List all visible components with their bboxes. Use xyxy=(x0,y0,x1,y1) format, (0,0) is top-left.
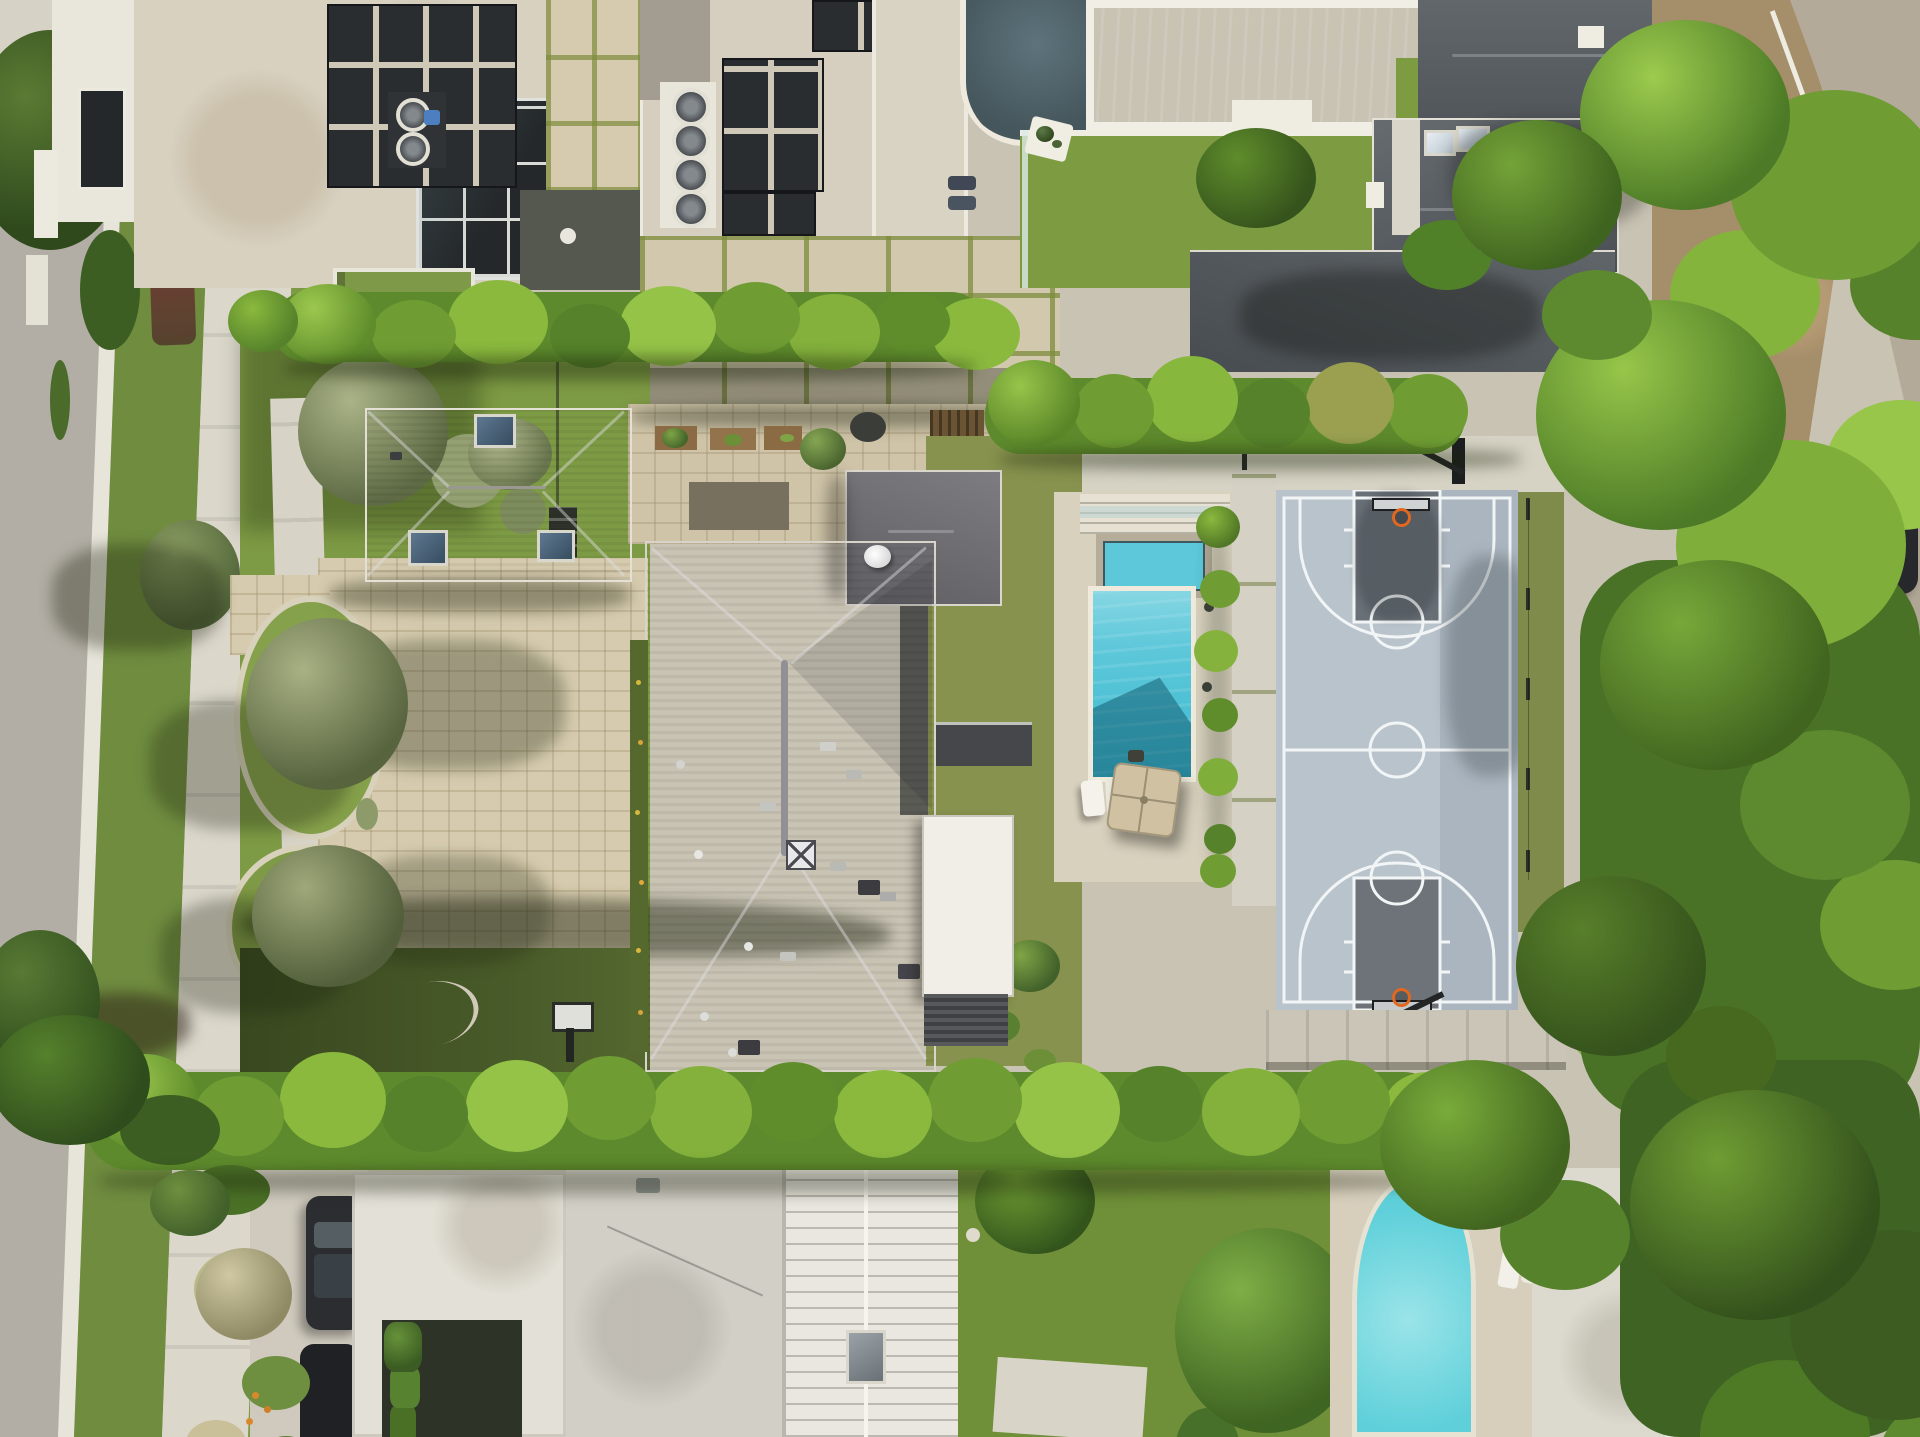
south-white-ribbed-roof xyxy=(782,1162,958,1437)
upper-paver-walkway xyxy=(546,0,640,192)
pool-side-hedge xyxy=(1196,506,1240,548)
north-hedge-west-tail xyxy=(228,290,298,352)
aerial-photo-stage xyxy=(0,0,1920,1437)
pampas-plume xyxy=(196,1248,292,1340)
umbrella-finial xyxy=(1140,796,1148,804)
south-hedge-shadow-down xyxy=(100,1168,1430,1194)
ribbed-roof-skylight xyxy=(846,1330,886,1384)
north-wing-ridge xyxy=(888,530,954,533)
pool-lounger-1 xyxy=(1080,779,1106,817)
hoop-south-rim xyxy=(1392,988,1411,1007)
garage-ridge xyxy=(448,486,546,489)
north-neighbor-balcony-rail-2 xyxy=(26,255,48,325)
turf-steps-platform xyxy=(936,722,1032,766)
solar-array-d xyxy=(722,192,816,236)
planter-box-2 xyxy=(710,428,756,450)
trees-patio-north xyxy=(1196,128,1316,228)
parked-car-south-1-glass xyxy=(314,1222,356,1248)
parked-car-south-1-roof xyxy=(314,1254,356,1298)
sports-net-line xyxy=(1528,500,1529,880)
parked-car-east-1-glass xyxy=(1862,480,1910,508)
northeast-roof-upper-ridge xyxy=(1452,54,1622,57)
south-gray-flat-roof xyxy=(566,1165,782,1437)
ribbed-roof-ridge xyxy=(864,1162,868,1437)
garage-skylight-2 xyxy=(408,530,448,566)
solar-array-b xyxy=(722,58,824,192)
yucca-pampas-garden xyxy=(150,1170,230,1236)
northeast-chimney-2 xyxy=(1366,182,1384,208)
blue-tarp-detail xyxy=(424,110,440,125)
west-bed-yellow-flowers xyxy=(636,680,641,685)
hvac-fan-4 xyxy=(672,122,710,160)
north-neighbor-corner-window xyxy=(78,88,126,190)
olive-shadow-sidewalk xyxy=(52,545,222,650)
northeast-side-path xyxy=(1392,120,1420,235)
parked-car-south-2 xyxy=(300,1344,360,1437)
white-patio-roof xyxy=(922,815,1014,997)
north-glass-rail xyxy=(1022,130,1028,288)
satellite-dish xyxy=(864,545,891,568)
fire-table-dark xyxy=(850,412,886,442)
planter-box-3 xyxy=(764,426,802,450)
north-hedge-shadow-east xyxy=(1000,448,1520,470)
hvac-fan-6 xyxy=(672,190,710,228)
terrace-lounger-2 xyxy=(948,196,976,210)
main-ridge xyxy=(781,660,788,856)
northeast-skylight-1 xyxy=(1424,130,1456,156)
east-trees-olive-dark xyxy=(1516,876,1706,1056)
courtyard-shrub xyxy=(800,428,846,470)
garage-shadow-on-court xyxy=(330,578,630,612)
roof-pipe-vents xyxy=(820,742,836,751)
garage-skylight-1 xyxy=(474,414,516,448)
hoop-north-rim xyxy=(1392,508,1411,527)
wall-hoop-pole xyxy=(566,1028,574,1062)
court-retaining-wall xyxy=(1266,1010,1566,1070)
terrace-lounger-1 xyxy=(948,176,976,190)
east-trees-hedge-junction xyxy=(1380,1060,1570,1230)
pool-side-table xyxy=(1128,750,1144,762)
roof-vents-white xyxy=(694,850,703,859)
south-lawn-walkway xyxy=(993,1357,1148,1437)
garage-skylight-3 xyxy=(537,530,575,562)
garage-vent xyxy=(390,452,402,460)
north-neighbor-balcony-rail-1 xyxy=(34,150,58,238)
east-trees-mid xyxy=(1600,560,1830,770)
north-hedge-blobs-east xyxy=(988,360,1080,446)
roof-dark-vent xyxy=(858,880,880,895)
west-flower-bed xyxy=(630,640,648,1052)
hedge-shadow-on-deck xyxy=(1206,520,1230,870)
patio-table-white xyxy=(560,228,576,244)
pool-house-skylight xyxy=(1561,1191,1609,1257)
orange-flower-specks xyxy=(252,1392,259,1399)
louvered-pergola xyxy=(924,994,1008,1046)
south-hedge-base xyxy=(86,1072,1448,1170)
east-trees-south xyxy=(1630,1090,1880,1320)
north-hedge-base-west xyxy=(272,292,986,362)
olive-tree-south xyxy=(252,845,404,987)
planter-greens xyxy=(662,428,688,448)
pool-court-walkway xyxy=(1232,470,1276,906)
northeast-chimney-1 xyxy=(1578,26,1604,48)
tree-shadows-on-metal-roof xyxy=(1240,270,1540,360)
sunken-patio-dark xyxy=(520,190,642,290)
courtyard-dark-paver-square xyxy=(689,482,789,530)
trees-court-northeast xyxy=(1452,120,1622,270)
solar-array-c xyxy=(812,0,874,52)
roof-vent-box-x xyxy=(786,840,816,870)
hvac-fan-3 xyxy=(672,88,710,126)
hvac-fan-5 xyxy=(672,156,710,194)
courtyard-hedge xyxy=(384,1322,422,1372)
olive-tree-mid xyxy=(246,618,408,790)
east-trees-big-bright xyxy=(1536,300,1786,530)
court-east-turf-strip xyxy=(1518,492,1564,932)
north-hedge-shadow-west xyxy=(285,356,975,380)
lawn-paver-dots xyxy=(966,1228,980,1242)
agave-plants xyxy=(1036,126,1054,142)
hvac-fan-2 xyxy=(396,132,430,166)
